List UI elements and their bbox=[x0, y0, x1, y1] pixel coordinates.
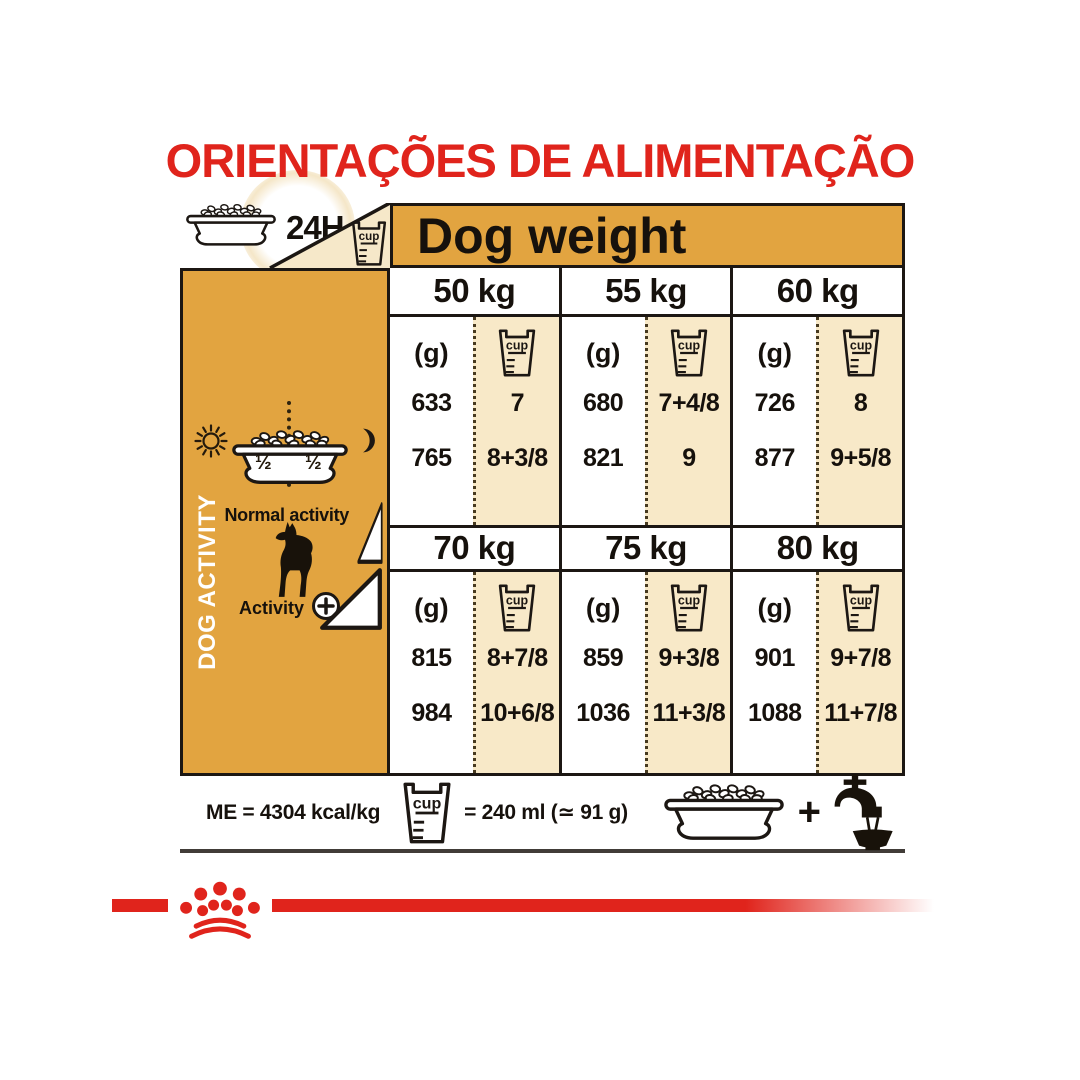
weight-label: 70 kg bbox=[390, 525, 559, 572]
dog-weight-header: Dog weight bbox=[390, 203, 905, 268]
weight-column-75kg: 75 kg (g) 859 1036 9+3/8 11+3/8 bbox=[562, 525, 734, 776]
cup-value: 11+3/8 bbox=[648, 699, 731, 728]
cup-value: 9+7/8 bbox=[819, 644, 902, 673]
grams-unit-label: (g) bbox=[586, 593, 620, 624]
grams-subcolumn: (g) 633 765 bbox=[390, 317, 473, 525]
weight-label: 60 kg bbox=[733, 268, 902, 317]
grams-unit-label: (g) bbox=[758, 338, 792, 369]
metabolizable-energy-label: ME = 4304 kcal/kg bbox=[206, 801, 380, 825]
normal-activity-ramp-icon bbox=[357, 501, 383, 565]
cups-subcolumn: 9+3/8 11+3/8 bbox=[645, 572, 731, 773]
cup-value: 9+5/8 bbox=[819, 444, 902, 473]
gram-value: 680 bbox=[562, 389, 645, 418]
plus-sign: + bbox=[798, 790, 821, 835]
water-tap-icon bbox=[825, 774, 895, 852]
cup-value: 11+7/8 bbox=[819, 699, 902, 728]
measuring-cup-icon bbox=[669, 329, 709, 377]
grams-subcolumn: (g) 680 821 bbox=[562, 317, 645, 525]
grams-subcolumn: (g) 901 1088 bbox=[733, 572, 816, 773]
footer-info-row: ME = 4304 kcal/kg = 240 ml (≃ 91 g) + bbox=[180, 776, 905, 853]
cup-value: 8+7/8 bbox=[476, 644, 559, 673]
cups-subcolumn: 7+4/8 9 bbox=[645, 317, 731, 525]
cup-value: 8 bbox=[819, 389, 902, 418]
cups-subcolumn: 7 8+3/8 bbox=[473, 317, 559, 525]
dog-silhouette-icon bbox=[271, 521, 323, 599]
cup-value: 9+3/8 bbox=[648, 644, 731, 673]
high-activity-label: Activity bbox=[239, 598, 304, 619]
weight-column-70kg: 70 kg (g) 815 984 8+7/8 10+6/8 bbox=[390, 525, 562, 776]
dog-activity-sidebar: DOG ACTIVITY ½ ½ Normal activity Activit… bbox=[180, 268, 390, 776]
cup-value: 7 bbox=[476, 389, 559, 418]
grams-subcolumn: (g) 859 1036 bbox=[562, 572, 645, 773]
weight-column-80kg: 80 kg (g) 901 1088 9+7/8 11+7/8 bbox=[733, 525, 905, 776]
grams-unit-label: (g) bbox=[414, 338, 448, 369]
moon-icon bbox=[349, 423, 377, 458]
weight-label: 55 kg bbox=[562, 268, 731, 317]
table-block-row-1: 50 kg (g) 633 765 7 8+3/8 55 kg bbox=[390, 268, 905, 525]
cups-subcolumn: 8 9+5/8 bbox=[816, 317, 902, 525]
grams-unit-label: (g) bbox=[586, 338, 620, 369]
grams-unit-label: (g) bbox=[758, 593, 792, 624]
grams-subcolumn: (g) 815 984 bbox=[390, 572, 473, 773]
gram-value: 859 bbox=[562, 644, 645, 673]
measuring-cup-icon bbox=[669, 584, 709, 632]
gram-value: 1088 bbox=[733, 699, 816, 728]
cup-value: 8+3/8 bbox=[476, 444, 559, 473]
cup-equivalence-label: = 240 ml (≃ 91 g) bbox=[464, 800, 628, 825]
feeding-guide-infographic: ORIENTAÇÕES DE ALIMENTAÇÃO 24H Dog weigh… bbox=[0, 0, 1080, 1080]
weight-column-60kg: 60 kg (g) 726 877 8 9+5/8 bbox=[733, 268, 905, 525]
gram-value: 633 bbox=[390, 389, 473, 418]
measuring-cup-icon bbox=[841, 329, 881, 377]
food-bowl-icon bbox=[227, 429, 353, 487]
half-ration-evening: ½ bbox=[305, 452, 322, 475]
gram-value: 815 bbox=[390, 644, 473, 673]
gram-value: 726 bbox=[733, 389, 816, 418]
table-block-row-2: 70 kg (g) 815 984 8+7/8 10+6/8 75 kg bbox=[390, 525, 905, 776]
measuring-cup-icon bbox=[497, 584, 537, 632]
half-ration-morning: ½ bbox=[255, 452, 272, 475]
weight-column-55kg: 55 kg (g) 680 821 7+4/8 9 bbox=[562, 268, 734, 525]
dog-weight-title: Dog weight bbox=[417, 207, 686, 265]
weight-label: 50 kg bbox=[390, 268, 559, 317]
gram-value: 984 bbox=[390, 699, 473, 728]
gram-value: 765 bbox=[390, 444, 473, 473]
sun-icon bbox=[193, 423, 229, 459]
measuring-cup-icon bbox=[400, 782, 454, 844]
crown-paw-icon bbox=[176, 873, 264, 939]
weight-label: 80 kg bbox=[733, 525, 902, 572]
royal-canin-logo bbox=[168, 866, 272, 946]
weight-label: 75 kg bbox=[562, 525, 731, 572]
cups-subcolumn: 8+7/8 10+6/8 bbox=[473, 572, 559, 773]
cup-value: 7+4/8 bbox=[648, 389, 731, 418]
weight-column-50kg: 50 kg (g) 633 765 7 8+3/8 bbox=[390, 268, 562, 525]
gram-value: 901 bbox=[733, 644, 816, 673]
measuring-cup-icon bbox=[497, 329, 537, 377]
gram-value: 821 bbox=[562, 444, 645, 473]
gram-value: 877 bbox=[733, 444, 816, 473]
weight-table: 50 kg (g) 633 765 7 8+3/8 55 kg bbox=[390, 268, 905, 776]
measuring-cup-icon bbox=[841, 584, 881, 632]
food-bowl-icon bbox=[660, 783, 788, 843]
grams-subcolumn: (g) 726 877 bbox=[733, 317, 816, 525]
measuring-cup-icon bbox=[350, 221, 388, 266]
page-title: ORIENTAÇÕES DE ALIMENTAÇÃO bbox=[0, 133, 1080, 188]
cup-value: 9 bbox=[648, 444, 731, 473]
grams-unit-label: (g) bbox=[414, 593, 448, 624]
cups-subcolumn: 9+7/8 11+7/8 bbox=[816, 572, 902, 773]
cup-value: 10+6/8 bbox=[476, 699, 559, 728]
high-activity-ramp-icon bbox=[319, 567, 383, 631]
gram-value: 1036 bbox=[562, 699, 645, 728]
